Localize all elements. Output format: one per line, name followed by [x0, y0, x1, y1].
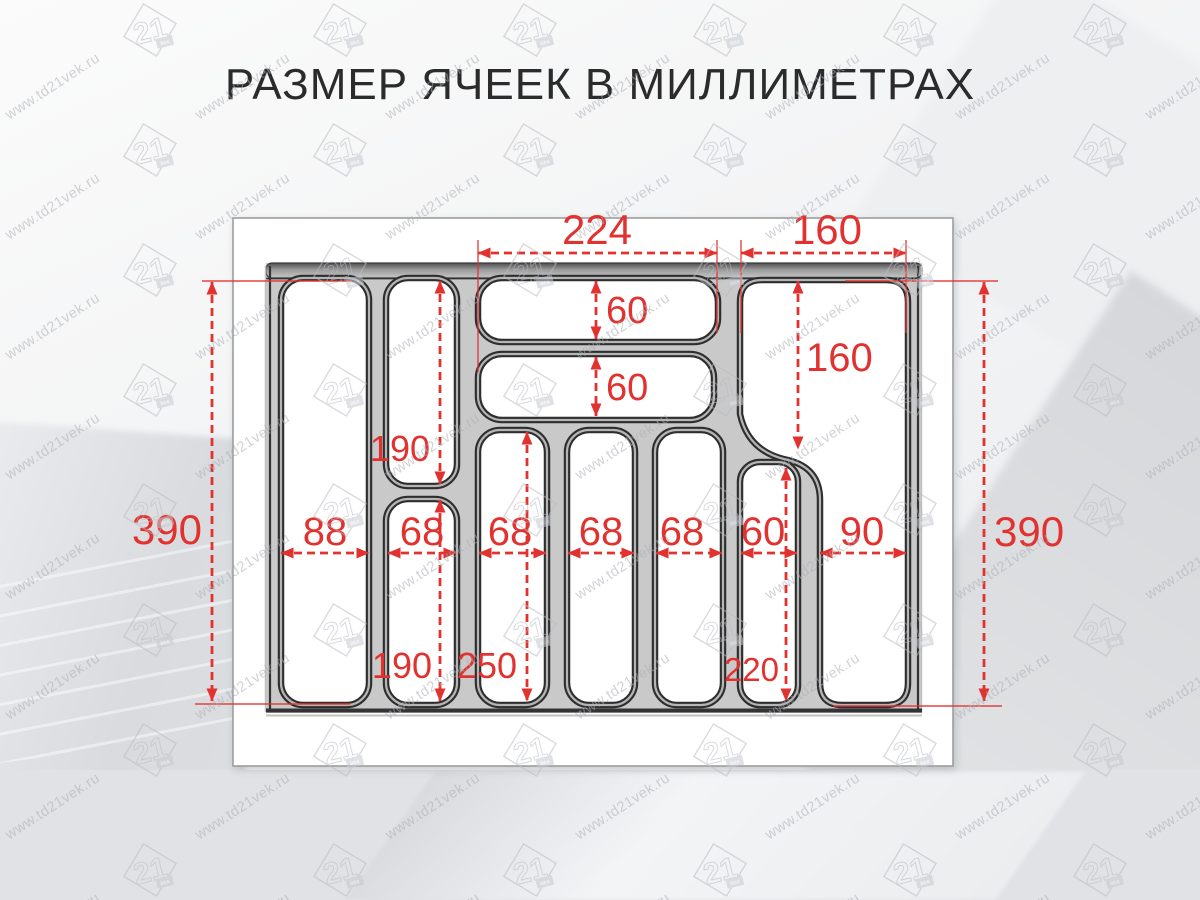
dim-label-90: 90 — [840, 510, 885, 554]
dim-label-390-left: 390 — [132, 506, 202, 553]
dim-label-220: 220 — [724, 651, 779, 688]
dim-label-224: 224 — [562, 206, 632, 253]
cutlery-tray-dimension-diagram: 224 160 60 60 160 190 190 250 220 390 39… — [0, 0, 1200, 900]
dim-label-390-right: 390 — [994, 508, 1064, 555]
dim-label-190-lower: 190 — [372, 645, 432, 686]
page: РАЗМЕР ЯЧЕЕК В МИЛЛИМЕТРАХ — [0, 0, 1200, 900]
dim-label-68-d: 68 — [660, 510, 705, 554]
dim-label-60-bottom: 60 — [741, 510, 786, 554]
dim-label-88: 88 — [303, 510, 348, 554]
dim-label-190-upper: 190 — [370, 428, 430, 469]
compartment-middle-68-c — [655, 430, 723, 705]
dim-label-68-c: 68 — [579, 510, 624, 554]
dim-label-160-vertical: 160 — [806, 336, 873, 380]
dim-label-60-tray1: 60 — [606, 290, 648, 332]
compartment-middle-68-b — [567, 430, 635, 705]
dim-label-60-tray2: 60 — [606, 367, 648, 409]
compartment-left-88 — [281, 278, 369, 705]
dim-label-160-top: 160 — [792, 206, 862, 253]
tray-drawing — [266, 263, 923, 716]
compartment-wide-224-top — [478, 278, 718, 342]
dim-label-68-b: 68 — [488, 510, 533, 554]
dim-label-68-a: 68 — [400, 510, 445, 554]
dim-label-250: 250 — [457, 645, 517, 686]
